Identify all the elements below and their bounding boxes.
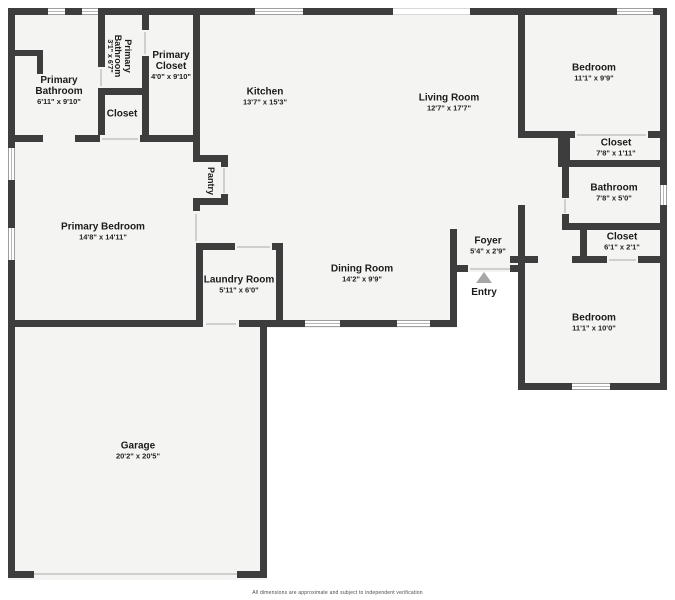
window xyxy=(255,8,303,15)
entry-label: Entry xyxy=(471,287,497,298)
door-opening xyxy=(144,32,146,54)
room-label-bedroom-top-right: Bedroom 11'1" x 9'9" xyxy=(554,63,634,84)
wall xyxy=(8,8,667,15)
room-label-laundry-room: Laundry Room 5'11" x 6'0" xyxy=(194,275,284,296)
closet-door-opening xyxy=(577,134,646,136)
wall xyxy=(510,256,538,263)
room-label-closet-right: Closet 6'1" x 2'1" xyxy=(587,232,657,253)
wall xyxy=(75,135,100,142)
wall xyxy=(558,160,667,167)
room-label-garage: Garage 20'2" x 20'5" xyxy=(93,441,183,462)
garage-door-opening xyxy=(34,573,237,575)
wall xyxy=(450,265,468,272)
floor-plan: Entry Primary Bathroom 6'11" x 9'10" Pri… xyxy=(0,0,675,600)
wall xyxy=(193,8,200,155)
window xyxy=(82,8,98,15)
room-label-living-room: Living Room 12'7" x 17'7" xyxy=(409,93,489,114)
wall xyxy=(518,8,525,138)
wall xyxy=(193,205,200,211)
closet-door-opening xyxy=(102,138,138,140)
wall xyxy=(37,50,43,74)
room-label-kitchen: Kitchen 13'7" x 15'3" xyxy=(225,87,305,108)
wall xyxy=(260,327,267,578)
laundry-door-opening xyxy=(237,246,270,248)
door-opening xyxy=(195,214,197,241)
wall xyxy=(8,571,34,578)
entry-arrow-icon xyxy=(476,272,492,283)
wall xyxy=(8,8,15,578)
closet-door-opening xyxy=(609,259,636,261)
window xyxy=(617,8,653,15)
window xyxy=(660,185,667,205)
room-label-pantry: Pantry xyxy=(206,161,216,201)
wall xyxy=(638,256,667,263)
room-label-closet-top-left: Closet xyxy=(99,109,145,120)
room-label-bathroom-right: Bathroom 7'8" x 5'0" xyxy=(574,183,654,204)
wall xyxy=(239,320,305,327)
window xyxy=(305,320,340,327)
wall xyxy=(221,162,228,167)
pantry-door-opening xyxy=(223,168,225,193)
wall xyxy=(572,256,607,263)
wall xyxy=(98,15,105,67)
disclaimer-text: All dimensions are approximate and subje… xyxy=(0,590,675,596)
window xyxy=(48,8,65,15)
door-opening xyxy=(206,323,236,325)
room-label-primary-bedroom: Primary Bedroom 14'8" x 14'11" xyxy=(48,222,158,243)
room-label-primary-bathroom-small: Primary Bathroom 3'1" x 6'7" xyxy=(105,34,133,78)
window xyxy=(572,383,610,390)
entry-door-opening xyxy=(470,268,510,270)
room-label-bedroom-bottom-right: Bedroom 11'1" x 10'0" xyxy=(554,313,634,334)
room-label-primary-bathroom: Primary Bathroom 6'11" x 9'10" xyxy=(30,75,88,107)
window xyxy=(393,8,470,15)
wall xyxy=(340,320,397,327)
bathroom-door-opening xyxy=(564,199,566,213)
wall xyxy=(450,229,457,327)
room-label-dining-room: Dining Room 14'2" x 9'9" xyxy=(317,264,407,285)
wall xyxy=(518,205,525,390)
floor-area-right-wing xyxy=(518,328,667,390)
room-label-foyer: Foyer 5'4" x 2'9" xyxy=(458,236,518,257)
wall xyxy=(562,223,667,230)
window xyxy=(8,228,15,260)
room-label-primary-closet: Primary Closet 4'0" x 9'10" xyxy=(148,50,194,82)
wall xyxy=(142,15,149,30)
door-opening xyxy=(100,69,102,86)
window xyxy=(397,320,430,327)
wall xyxy=(8,320,203,327)
room-label-closet-top-right: Closet 7'8" x 1'11" xyxy=(581,138,651,159)
window xyxy=(8,148,15,180)
wall xyxy=(8,135,43,142)
wall xyxy=(140,135,200,142)
wall xyxy=(562,167,569,198)
